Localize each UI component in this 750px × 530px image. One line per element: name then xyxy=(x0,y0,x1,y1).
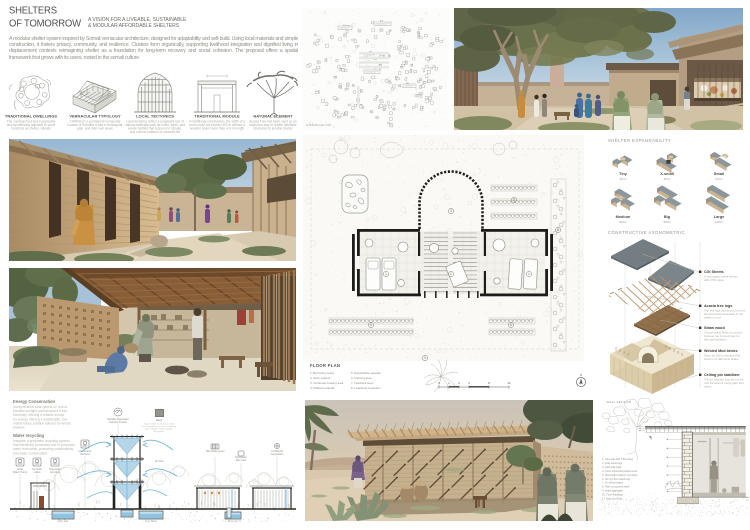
svg-text:32m²: 32m² xyxy=(619,177,626,181)
svg-text:filter tank: filter tank xyxy=(236,458,247,462)
svg-text:10. Floor handbag: 10. Floor handbag xyxy=(602,493,623,496)
svg-text:with 2.5% slope: with 2.5% slope xyxy=(704,278,725,282)
svg-text:Small: Small xyxy=(714,171,724,176)
svg-text:1. Bed living space: 1. Bed living space xyxy=(310,371,335,375)
svg-text:1: 1 xyxy=(448,381,450,385)
svg-text:2: 2 xyxy=(458,381,460,385)
svg-text:and water conservation.: and water conservation. xyxy=(13,451,48,455)
svg-text:64m²: 64m² xyxy=(715,177,722,181)
svg-text:6. 4cm by 5cm wood logs: 6. 4cm by 5cm wood logs xyxy=(602,478,631,481)
svg-text:X-small: X-small xyxy=(660,171,674,176)
svg-text:Mini Solar panel: Mini Solar panel xyxy=(206,449,225,453)
svg-text:112m²: 112m² xyxy=(715,220,724,224)
svg-text:CGI Sheets: CGI Sheets xyxy=(704,270,724,274)
svg-text:Filter tank: Filter tank xyxy=(58,520,69,523)
svg-text:11. 5cm mud brick: 11. 5cm mud brick xyxy=(602,497,623,500)
svg-text:TRADITIONAL MODULE: TRADITIONAL MODULE xyxy=(194,114,240,119)
svg-text:2. Semi outdoor: 2. Semi outdoor xyxy=(310,376,330,380)
svg-text:80m²: 80m² xyxy=(619,220,626,224)
svg-text:Gardens: Gardens xyxy=(80,452,91,456)
svg-text:2. 4x4s wood logs: 2. 4x4s wood logs xyxy=(602,462,623,465)
svg-text:Large: Large xyxy=(714,214,725,219)
svg-text:96m²: 96m² xyxy=(663,220,670,224)
svg-text:7. Livestock keep: 7. Livestock keep xyxy=(351,381,374,385)
svg-text:thermal insulation: thermal insulation xyxy=(704,338,727,342)
svg-text:8. Livelihood expantion: 8. Livelihood expantion xyxy=(351,386,381,390)
svg-text:TRADITIONAL DWELLINGS: TRADITIONAL DWELLINGS xyxy=(5,114,57,119)
svg-text:6: 6 xyxy=(370,323,372,327)
svg-text:4. Pakked veranda: 4. Pakked veranda xyxy=(310,386,334,390)
svg-text:WALL SECTION: WALL SECTION xyxy=(607,400,632,404)
svg-text:plan, and their own views: plan, and their own views xyxy=(77,127,113,131)
svg-text:Water Pump: Water Pump xyxy=(13,470,28,474)
svg-text:No flow: No flow xyxy=(155,459,164,463)
svg-text:structures to provide shelter: structures to provide shelter xyxy=(253,127,293,131)
svg-text:3. palm leaf mats: 3. palm leaf mats xyxy=(602,466,622,469)
svg-text:Ceiling pin stabilizer: Ceiling pin stabilizer xyxy=(704,373,740,377)
svg-text:2: 2 xyxy=(450,272,452,276)
svg-text:recycling: recycling xyxy=(50,470,61,474)
svg-text:1. Cap seal with 2.5% slope: 1. Cap seal with 2.5% slope xyxy=(602,458,633,461)
svg-text:A permeable mesh fabric sheet: A permeable mesh fabric sheet xyxy=(144,422,175,425)
svg-text:ropes: ropes xyxy=(704,385,712,389)
svg-text:Harvest Panels: Harvest Panels xyxy=(109,420,127,424)
svg-text:bricks in a half circle shape: bricks in a half circle shape xyxy=(704,357,739,361)
svg-text:6: 6 xyxy=(510,323,512,327)
svg-text:8. Palm composed earth: 8. Palm composed earth xyxy=(602,486,630,489)
svg-text:8: 8 xyxy=(488,381,490,385)
svg-text:SHELTER EXPANDABILITY: SHELTER EXPANDABILITY xyxy=(608,138,671,143)
svg-text:4: 4 xyxy=(424,356,426,360)
svg-text:Medium: Medium xyxy=(616,214,631,219)
svg-text:Bore hole: Bore hole xyxy=(228,520,239,523)
svg-text:1: 1 xyxy=(385,272,387,276)
svg-text:Water recycling: Water recycling xyxy=(13,433,44,438)
svg-text:CONSTRUCTIVE AXONOMETRIC: CONSTRUCTIVE AXONOMETRIC xyxy=(608,230,685,235)
svg-text:5. Expandable veranda: 5. Expandable veranda xyxy=(351,371,381,375)
svg-text:VERNACULAR TYPOLOGY: VERNACULAR TYPOLOGY xyxy=(69,114,121,119)
svg-text:Straw wood: Straw wood xyxy=(704,326,725,330)
svg-text:toilets: toilets xyxy=(34,470,41,474)
svg-text:functions as shelter, climate: functions as shelter, climate xyxy=(11,127,50,131)
svg-text:6: 6 xyxy=(557,228,559,232)
svg-text:Energy Conservation: Energy Conservation xyxy=(13,399,56,404)
svg-text:Big: Big xyxy=(664,214,671,219)
svg-text:6. Farming area: 6. Farming area xyxy=(351,376,372,380)
svg-text:12: 12 xyxy=(507,381,511,385)
svg-text:Acacia tree logs: Acacia tree logs xyxy=(704,304,732,308)
svg-text:Tiny: Tiny xyxy=(619,171,628,176)
svg-text:runs through the structure, ca: runs through the structure, catching xyxy=(142,425,177,428)
svg-text:Mesh: Mesh xyxy=(156,418,163,422)
svg-text:3: 3 xyxy=(450,209,452,213)
svg-text:7. 5m Wood plates: 7. 5m Wood plates xyxy=(602,482,624,485)
svg-text:be gravity: be gravity xyxy=(154,430,164,433)
svg-text:Grey Water: Grey Water xyxy=(145,520,157,523)
svg-text:N: N xyxy=(580,373,582,377)
svg-text:and cultural patterns of nomad: and cultural patterns of nomadic life xyxy=(130,130,181,134)
svg-text:3. Cordoned cooking area: 3. Cordoned cooking area xyxy=(310,381,344,385)
svg-text:9. straw aggregate: 9. straw aggregate xyxy=(602,490,623,493)
svg-text:LOCAL TECTONICS: LOCAL TECTONICS xyxy=(136,114,174,119)
svg-text:Generation: Generation xyxy=(271,452,284,456)
svg-text:48m²: 48m² xyxy=(663,177,670,181)
svg-text:wooden beam more than 4 m in l: wooden beam more than 4 m in length xyxy=(190,127,245,131)
svg-text:4: 4 xyxy=(468,381,470,385)
svg-text:water droplets which will late: water droplets which will later xyxy=(145,428,174,431)
svg-text:FLOOR PLAN: FLOOR PLAN xyxy=(310,363,340,368)
svg-text:1: 1 xyxy=(528,272,530,276)
svg-text:shelter’s roof: shelter’s roof xyxy=(704,316,721,320)
svg-text:shelters.: shelters. xyxy=(13,426,26,430)
svg-text:5: 5 xyxy=(513,198,515,202)
svg-text:NATURAL ELEMENT: NATURAL ELEMENT xyxy=(253,114,293,119)
svg-text:SITE PLAN scale 1:500: SITE PLAN scale 1:500 xyxy=(306,124,332,127)
svg-text:4. 15cm horizontal packed mud: 4. 15cm horizontal packed mud xyxy=(602,470,637,473)
svg-text:5. 25cmx20cmx20cm mud brick: 5. 25cmx20cmx20cm mud brick xyxy=(602,474,638,477)
svg-text:Welded Mud bricks: Welded Mud bricks xyxy=(704,349,738,353)
